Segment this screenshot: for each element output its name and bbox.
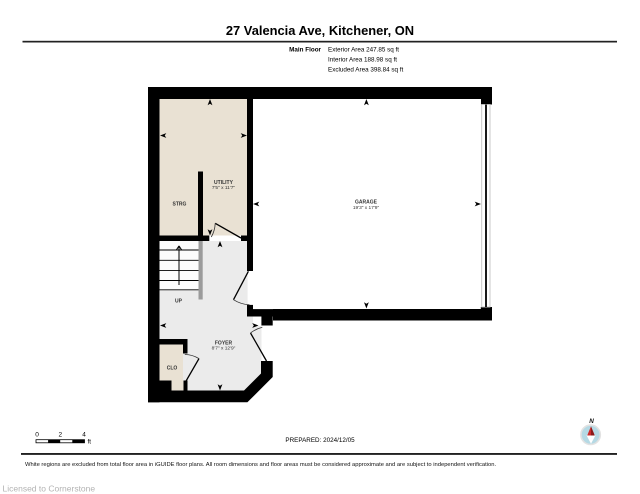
svg-text:Licensed to Cornerstone: Licensed to Cornerstone	[3, 483, 96, 493]
svg-text:CLO: CLO	[167, 366, 178, 372]
svg-text:UP: UP	[175, 298, 183, 304]
svg-text:UTILITY: UTILITY	[214, 180, 234, 186]
svg-text:Exterior Area 247.85 sq ft: Exterior Area 247.85 sq ft	[328, 47, 399, 54]
svg-text:0: 0	[35, 432, 39, 439]
svg-text:8'7" x 12'9": 8'7" x 12'9"	[212, 346, 236, 352]
svg-text:19'3" x 17'9": 19'3" x 17'9"	[353, 205, 380, 211]
svg-text:White regions are excluded fro: White regions are excluded from total fl…	[25, 462, 496, 468]
svg-text:GARAGE: GARAGE	[355, 200, 378, 206]
svg-text:Main Floor: Main Floor	[289, 47, 321, 54]
svg-text:ft: ft	[88, 439, 92, 446]
svg-text:4: 4	[82, 432, 86, 439]
svg-text:2: 2	[58, 432, 62, 439]
svg-text:7'5" x 11'7": 7'5" x 11'7"	[212, 185, 236, 191]
svg-text:PREPARED: 2024/12/05: PREPARED: 2024/12/05	[285, 437, 355, 444]
svg-text:27 Valencia Ave, Kitchener, ON: 27 Valencia Ave, Kitchener, ON	[226, 23, 414, 38]
svg-text:STRG: STRG	[173, 202, 187, 208]
svg-text:Interior Area 188.98 sq ft: Interior Area 188.98 sq ft	[328, 57, 397, 64]
svg-text:Excluded Area 398.84 sq ft: Excluded Area 398.84 sq ft	[328, 67, 404, 74]
svg-text:N: N	[589, 418, 594, 425]
